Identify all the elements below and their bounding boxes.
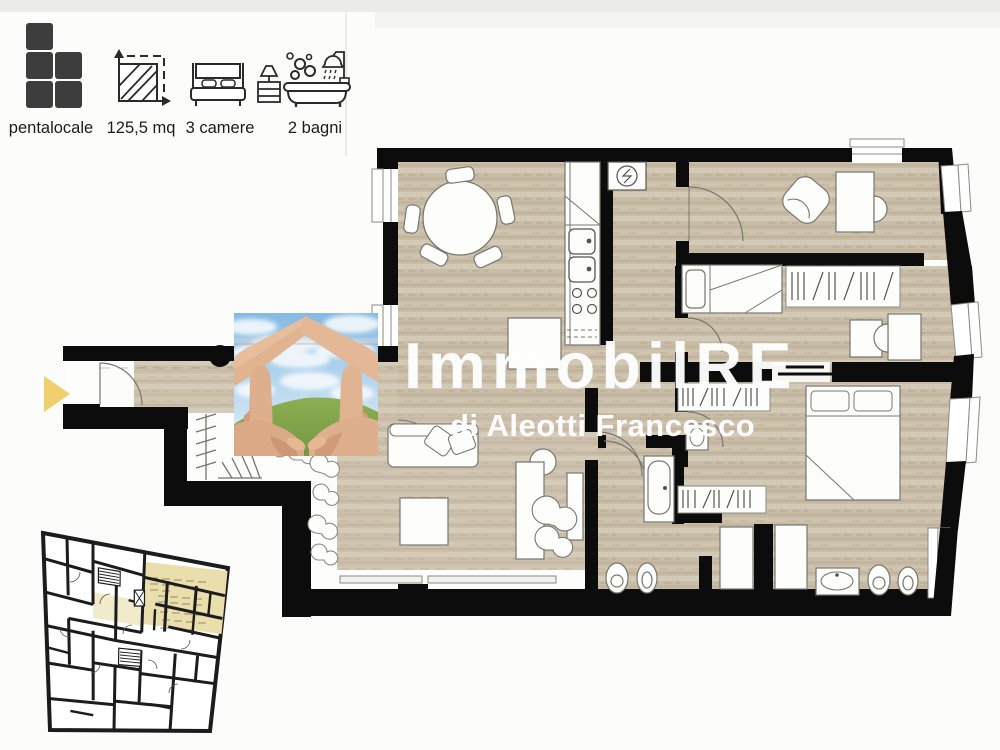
svg-text:3 camere: 3 camere: [186, 119, 255, 137]
svg-text:di Aleotti Francesco: di Aleotti Francesco: [450, 408, 755, 443]
svg-text:pentalocale: pentalocale: [9, 119, 93, 137]
svg-text:125,5 mq: 125,5 mq: [107, 119, 176, 137]
svg-text:ImmobilRE: ImmobilRE: [404, 329, 797, 402]
svg-text:2 bagni: 2 bagni: [288, 119, 342, 137]
